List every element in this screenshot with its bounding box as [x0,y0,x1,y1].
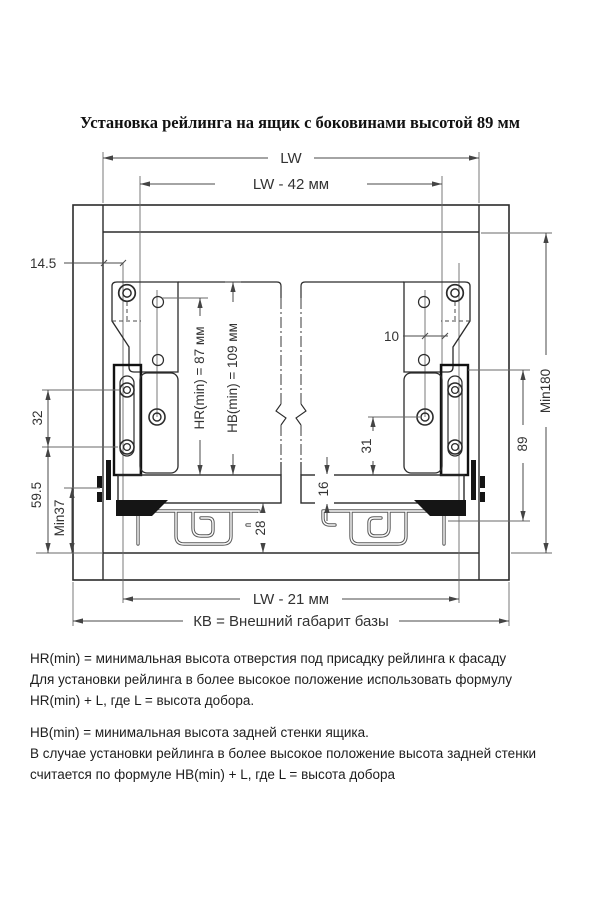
drawer-assembly-right [296,176,485,603]
dim-label-28: 28 [253,520,268,535]
technical-drawing: LW LW - 42 мм 14.5 HR(min) = 87 мм HB(mi… [0,140,600,640]
dim-label-14-5: 14.5 [30,256,56,271]
dimension-14-5: 14.5 [30,256,126,271]
dim-label-lw-21: LW - 21 мм [253,591,329,608]
note-hr-line3: HR(min) + L, где L = высота добора. [30,690,575,711]
note-hr: HR(min) = минимальная высота отверстия п… [30,648,575,711]
dim-label-89: 89 [515,436,530,451]
dimension-hr-min: HR(min) = 87 мм [162,298,208,475]
notes-section: HR(min) = минимальная высота отверстия п… [30,648,575,785]
dimension-lw-21: LW - 21 мм [123,591,459,608]
note-hb-line3: считается по формуле HB(min) + L, где L … [30,764,575,785]
dim-label-lw: LW [280,150,302,167]
dimension-hb-min: HB(min) = 109 мм [225,282,241,475]
note-hb-line2: В случае установки рейлинга в более высо… [30,743,575,764]
dim-label-59-5: 59.5 [29,482,44,508]
note-hr-line1: HR(min) = минимальная высота отверстия п… [30,648,575,669]
dimension-min180: Min180 [481,233,553,553]
dim-label-lw-42: LW - 42 мм [253,176,329,193]
dim-label-32: 32 [30,410,45,425]
dim-label-min180: Min180 [538,369,553,413]
note-hb-line1: HB(min) = минимальная высота задней стен… [30,722,575,743]
dim-label-hb-min: HB(min) = 109 мм [225,323,240,433]
dim-label-hr-min: HR(min) = 87 мм [192,327,207,430]
dimension-89: 89 [448,370,530,521]
dimension-lw-42: LW - 42 мм [140,176,442,193]
dim-label-10: 10 [384,329,399,344]
page-title: Установка рейлинга на ящик с боковинами … [0,113,600,133]
dimension-32: 32 [30,390,120,447]
note-hb: HB(min) = минимальная высота задней стен… [30,722,575,785]
note-hr-line2: Для установки рейлинга в более высокое п… [30,669,575,690]
dim-label-kv: КВ = Внешний габарит базы [193,613,389,630]
dimension-10: 10 [384,329,448,344]
dim-label-min37: Min37 [52,500,67,537]
dim-label-16: 16 [316,481,331,496]
dim-label-31: 31 [359,438,374,453]
dimension-min37: Min37 [52,488,100,553]
dimension-31: 31 [359,417,420,475]
page: Установка рейлинга на ящик с боковинами … [0,0,600,900]
